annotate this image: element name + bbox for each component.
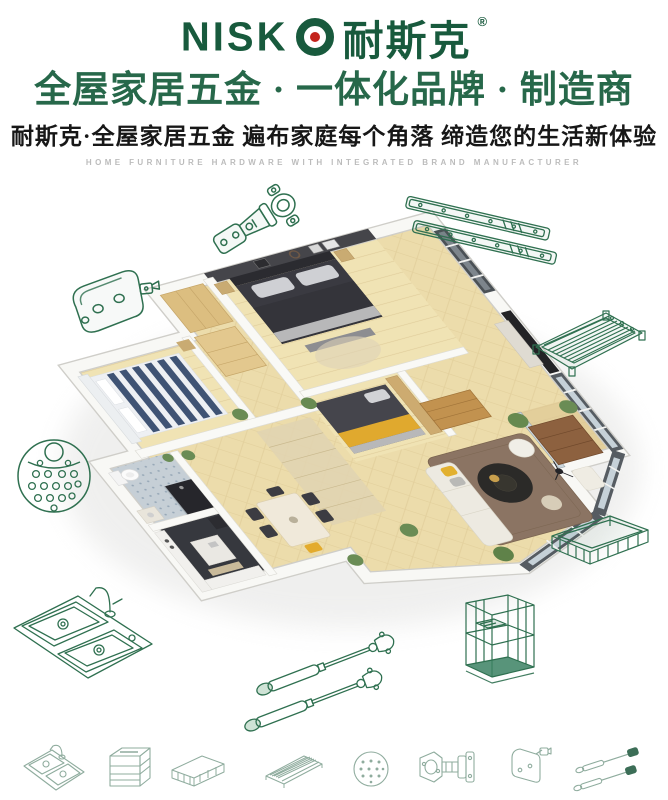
cabinet-hinge-drawing	[208, 180, 313, 262]
stage	[0, 168, 668, 738]
logo-o-target-icon	[295, 17, 335, 57]
product-icon-row	[0, 738, 668, 800]
registered-mark: ®	[477, 14, 487, 29]
perforated-plate-icon	[350, 748, 392, 790]
connector-bracket-icon	[504, 742, 552, 790]
poster: NISK 耐斯克 ® 全屋家居五金 · 一体化品牌 · 制造商 耐斯克·全屋家居…	[0, 0, 668, 800]
headline: 全屋家居五金 · 一体化品牌 · 制造商	[0, 71, 668, 112]
pullout-basket-icon	[102, 740, 156, 794]
brand-logo: NISK 耐斯克 ®	[0, 13, 668, 61]
wire-rack-drawing	[528, 305, 648, 377]
gas-struts-icon	[572, 740, 646, 792]
double-sink-icon	[22, 742, 86, 796]
gas-struts-drawing	[244, 623, 404, 731]
wire-cage-drawing	[450, 593, 542, 693]
logo-latin-text: NISK	[181, 14, 289, 60]
tagline-english: HOME FURNITURE HARDWARE WITH INTEGRATED …	[0, 158, 668, 167]
wire-basket-icon	[168, 748, 228, 790]
subheadline: 耐斯克·全屋家居五金 遍布家庭每个角落 缔造您的生活新体验	[0, 117, 668, 151]
drawer-slides-drawing	[402, 170, 562, 266]
wire-rack-icon	[262, 750, 326, 790]
perforated-plate-drawing	[10, 430, 98, 518]
logo-chinese-text: 耐斯克	[342, 7, 471, 67]
wire-basket-drawing	[546, 510, 654, 576]
cabinet-hinge-icon	[414, 744, 482, 790]
header: NISK 耐斯克 ® 全屋家居五金 · 一体化品牌 · 制造商 耐斯克·全屋家居…	[0, 0, 668, 167]
sink-drawing	[14, 580, 154, 700]
connector-bracket-drawing	[64, 265, 164, 350]
